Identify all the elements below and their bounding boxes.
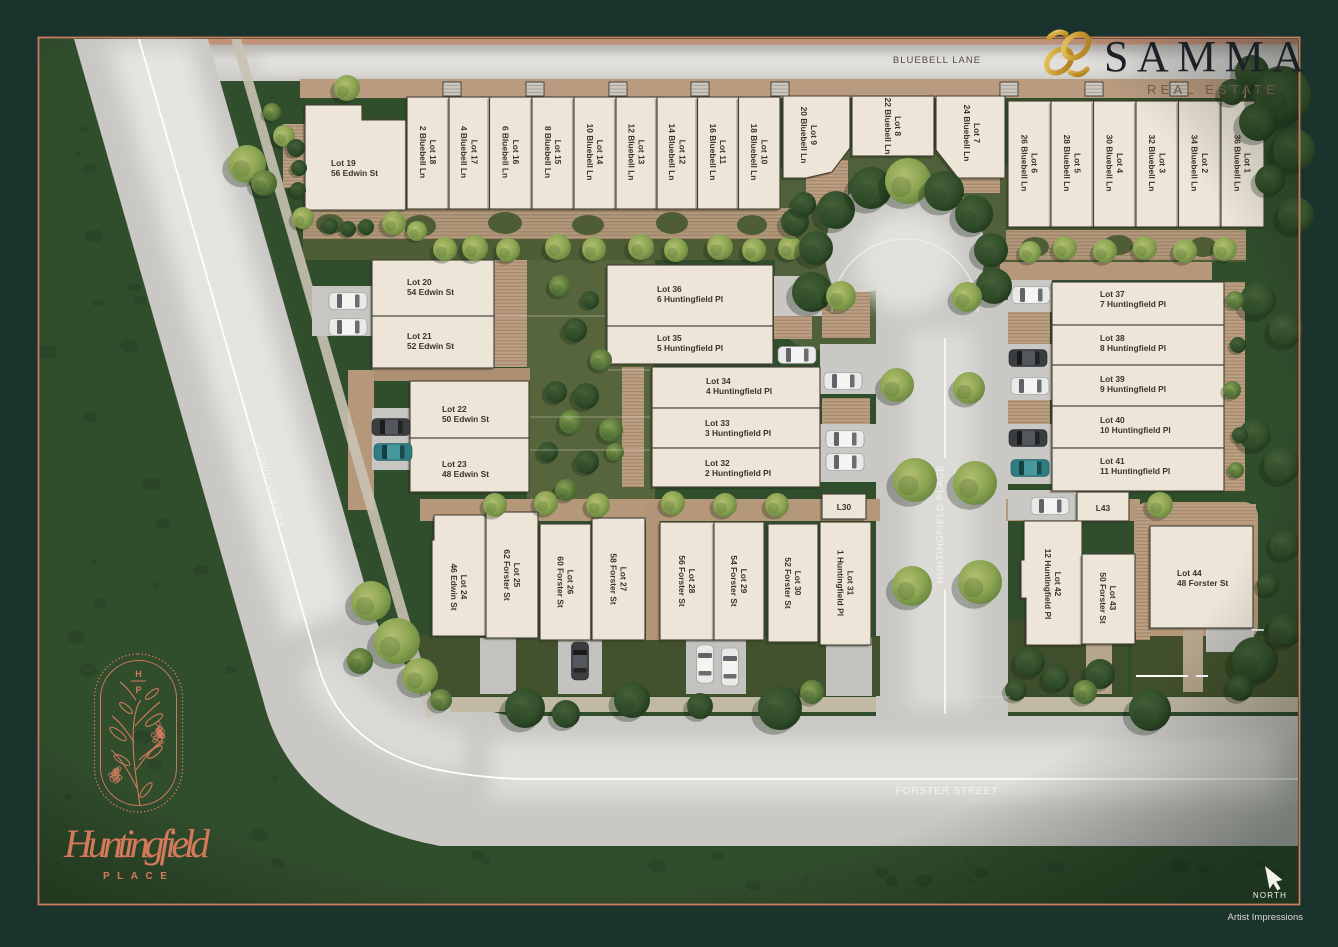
svg-text:REAL ESTATE: REAL ESTATE xyxy=(1147,82,1279,97)
svg-text:P: P xyxy=(135,685,141,695)
svg-text:NORTH: NORTH xyxy=(1253,891,1287,900)
svg-text:Artist Impressions: Artist Impressions xyxy=(1228,912,1304,923)
svg-text:PLACE: PLACE xyxy=(103,871,174,882)
svg-text:H: H xyxy=(135,669,142,679)
svg-text:Huntingfield: Huntingfield xyxy=(63,821,211,866)
